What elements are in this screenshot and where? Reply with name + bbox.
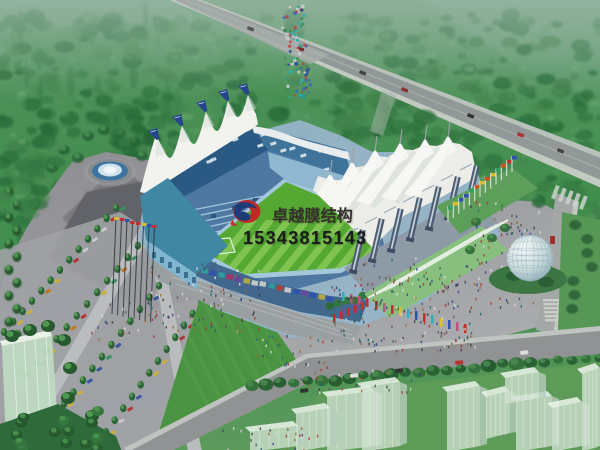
svg-text:15343815143: 15343815143 — [243, 228, 367, 248]
svg-text:卓越膜结构: 卓越膜结构 — [272, 206, 353, 225]
